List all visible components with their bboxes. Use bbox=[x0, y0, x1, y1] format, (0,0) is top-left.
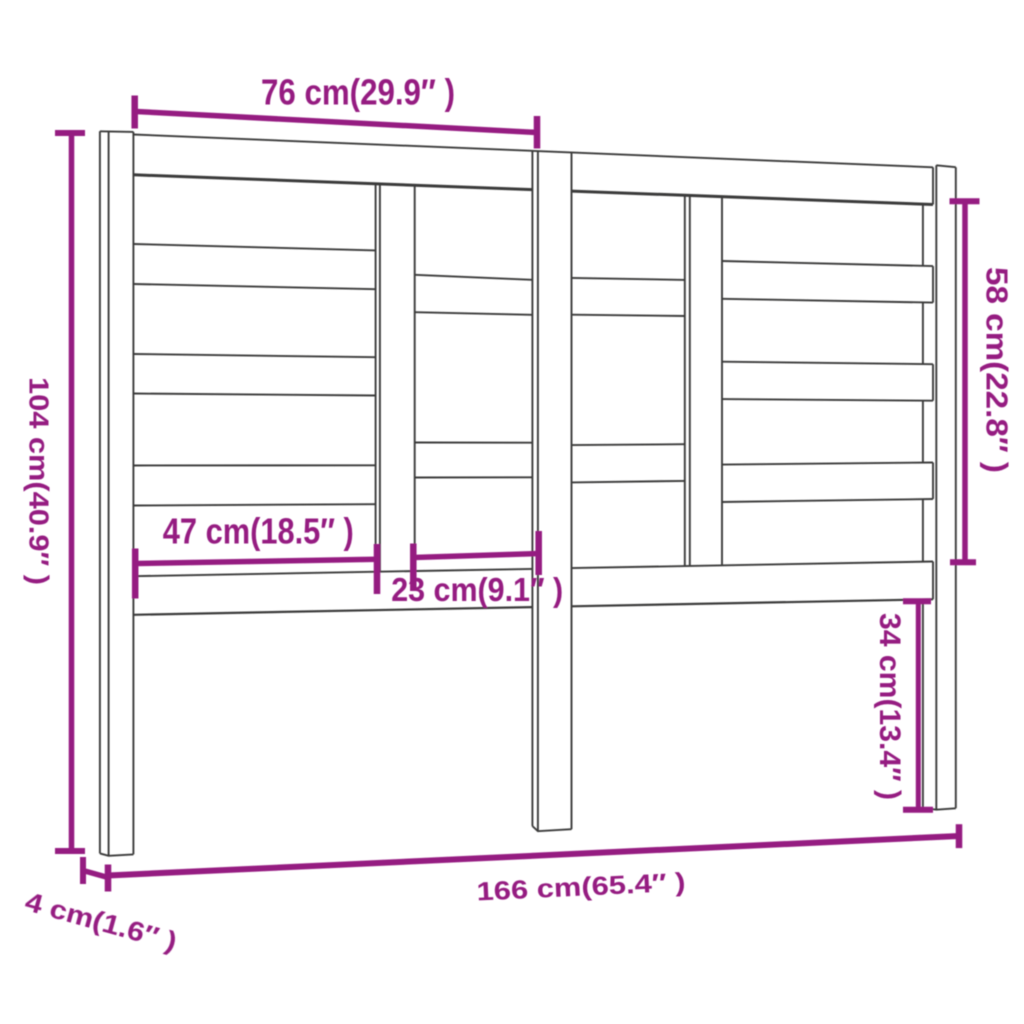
svg-text:34 cm(13.4″ ): 34 cm(13.4″ ) bbox=[873, 613, 906, 800]
svg-text:47 cm(18.5″ ): 47 cm(18.5″ ) bbox=[163, 511, 354, 552]
svg-text:23 cm(9.1″ ): 23 cm(9.1″ ) bbox=[391, 571, 563, 608]
svg-text:104 cm(40.9″ ): 104 cm(40.9″ ) bbox=[24, 377, 55, 585]
svg-text:76 cm(29.9″ ): 76 cm(29.9″ ) bbox=[261, 72, 455, 113]
svg-text:58 cm(22.8″ ): 58 cm(22.8″ ) bbox=[980, 267, 1014, 473]
